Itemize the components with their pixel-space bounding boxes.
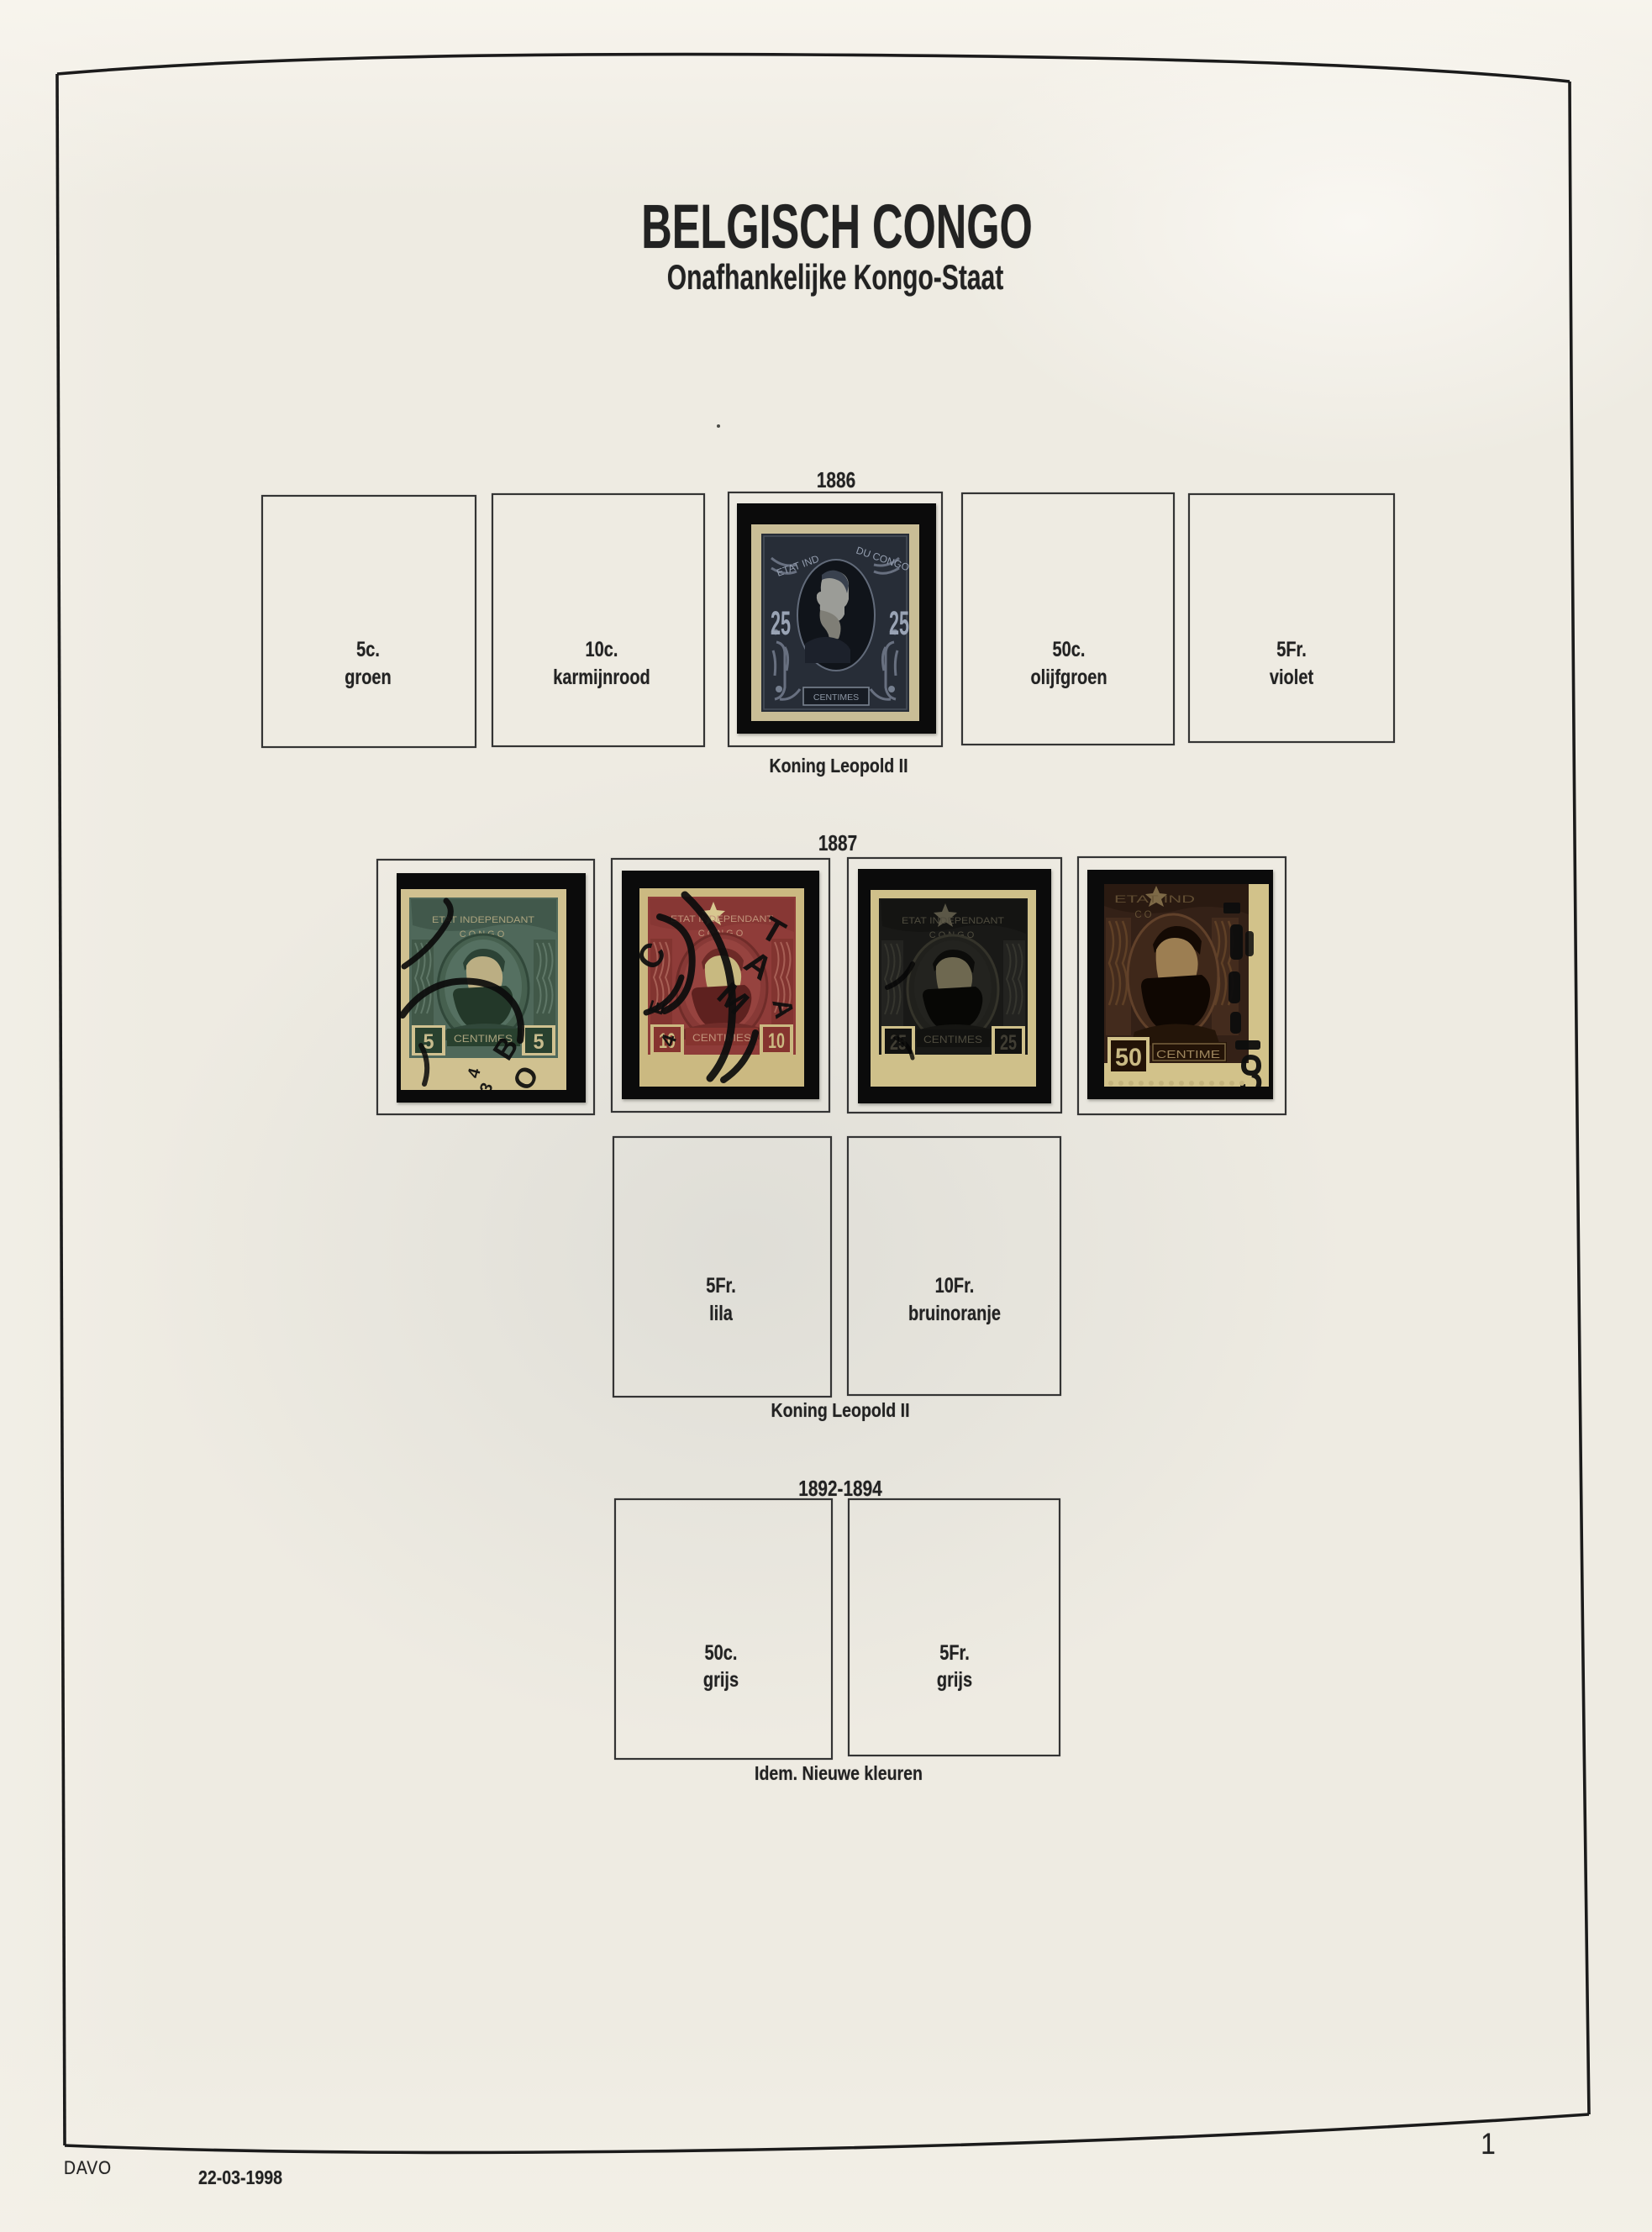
svg-text:25: 25 [771,605,791,642]
svg-text:ETAT INDEPENDANT: ETAT INDEPENDANT [671,914,773,924]
svg-text:CENTIME: CENTIME [1156,1048,1220,1061]
svg-text:50: 50 [1115,1044,1142,1071]
svg-text:25: 25 [1000,1031,1017,1055]
svg-text:10: 10 [768,1029,785,1053]
svg-text:5: 5 [534,1030,545,1054]
svg-text:ETAT IND: ETAT IND [1114,895,1195,905]
svg-text:CENTIMES: CENTIMES [923,1034,982,1045]
svg-text:25: 25 [889,605,909,642]
svg-text:CENTIMES: CENTIMES [813,692,859,703]
svg-text:CO: CO [1134,910,1154,920]
svg-text:ETAT INDEPENDANT: ETAT INDEPENDANT [902,916,1004,926]
svg-text:CENTIMES: CENTIMES [692,1032,751,1044]
